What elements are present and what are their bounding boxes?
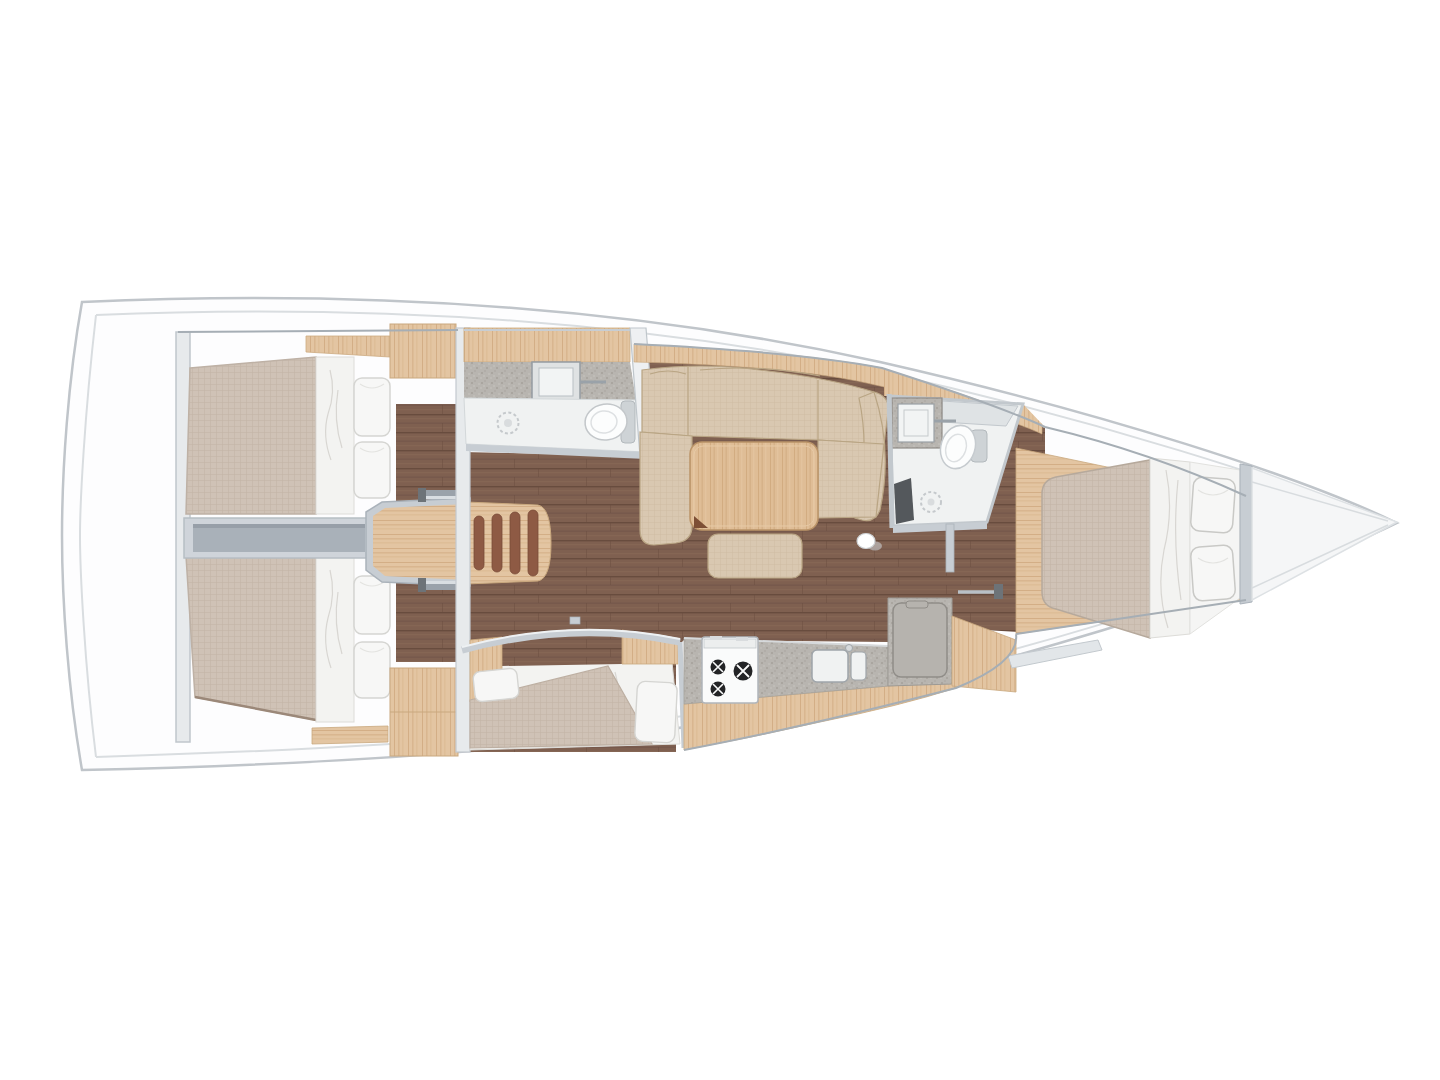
door-knob — [857, 534, 875, 549]
pillow — [1190, 477, 1236, 534]
anchor-locker-bulkhead — [1240, 464, 1252, 604]
stair-tread — [510, 512, 520, 574]
pillow — [473, 668, 520, 702]
yacht-floor-plan — [0, 0, 1440, 1080]
burner — [734, 662, 753, 681]
shower-seat — [894, 478, 914, 524]
pillow — [1190, 545, 1236, 602]
head-cabinet — [464, 328, 630, 362]
foot-step — [312, 726, 388, 744]
engine-corridor — [184, 518, 370, 558]
berth-mattress — [186, 556, 316, 720]
fridge-lid — [893, 603, 947, 677]
stair-tread — [474, 516, 484, 570]
pillow — [354, 642, 390, 698]
ottoman — [708, 534, 802, 578]
pillow — [354, 576, 390, 634]
salon-table — [690, 442, 818, 530]
cabin-floor — [396, 404, 458, 502]
galley-faucet — [846, 645, 853, 652]
berth-sheet — [316, 556, 354, 722]
galley-sink-main — [812, 650, 848, 682]
settee-chaise-left — [640, 432, 692, 545]
burner — [711, 682, 726, 697]
aft-head — [464, 328, 656, 459]
stair-tread — [528, 510, 538, 576]
fridge-handle — [906, 601, 928, 608]
pillow — [354, 442, 390, 498]
companionway-sole — [373, 504, 466, 580]
berth-mattress — [186, 357, 316, 514]
berth-sheet — [316, 357, 354, 514]
stove-rail — [704, 639, 756, 648]
door-post — [946, 524, 954, 572]
galley-sink-small — [851, 652, 866, 680]
door-handle-grip — [994, 584, 1003, 599]
burner — [711, 660, 726, 675]
head-wall-left — [889, 394, 892, 528]
wardrobe — [390, 324, 456, 378]
arch-latch — [570, 617, 580, 624]
pillow — [354, 378, 390, 436]
bow — [1240, 464, 1397, 604]
settee-seat-right — [818, 440, 884, 518]
pillow — [634, 681, 677, 743]
stair-tread — [492, 514, 502, 572]
